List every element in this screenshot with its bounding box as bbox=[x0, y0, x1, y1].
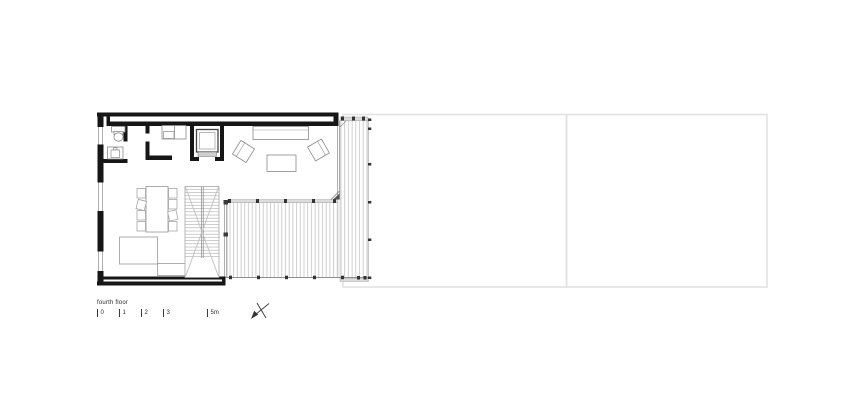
wall-top-inner bbox=[107, 122, 334, 127]
wall-left-seg3 bbox=[98, 211, 104, 252]
wall-bottom-end-cap bbox=[222, 277, 226, 286]
dining-chair bbox=[137, 211, 146, 221]
coffee-table bbox=[267, 155, 296, 172]
dining-area bbox=[136, 187, 178, 233]
dining-chair bbox=[168, 210, 178, 221]
dining-chair bbox=[169, 222, 178, 232]
wall-study-bottom bbox=[150, 156, 173, 161]
terrace-deck bbox=[226, 117, 372, 282]
wall-top-end-cap bbox=[334, 113, 339, 127]
sink-tap bbox=[114, 148, 118, 150]
living-room bbox=[232, 127, 329, 172]
cabinet-inner bbox=[164, 132, 175, 139]
floor-plan-drawing bbox=[0, 0, 853, 400]
dining-chair bbox=[169, 189, 178, 199]
sink-basin bbox=[111, 150, 120, 158]
wall-top-left-jog bbox=[107, 117, 111, 122]
neighbor-lot-2 bbox=[567, 115, 768, 288]
wall-bath-bottom bbox=[104, 159, 128, 163]
neighbor-lot-1 bbox=[343, 115, 567, 288]
wall-study-left bbox=[146, 142, 150, 161]
stair-treads bbox=[185, 187, 219, 259]
kitchen bbox=[120, 237, 189, 276]
bench bbox=[158, 264, 189, 276]
toilet-bowl bbox=[114, 133, 123, 141]
bathroom bbox=[108, 127, 126, 160]
scale-bar: 0 1 2 3 5m bbox=[0, 309, 300, 319]
dining-chair bbox=[137, 189, 146, 199]
wall-shaft-right bbox=[220, 126, 224, 161]
floor-label: fourth floor bbox=[97, 300, 128, 307]
dining-chair bbox=[136, 199, 147, 210]
scale-tick-1: 1 bbox=[119, 309, 126, 317]
dining-table bbox=[146, 187, 168, 233]
wall-shaft-left bbox=[190, 126, 194, 161]
dining-chair bbox=[169, 200, 178, 210]
dining-chair bbox=[137, 222, 146, 232]
wall-left-seg2 bbox=[98, 145, 104, 183]
deck-side-strip bbox=[340, 121, 368, 280]
elevator bbox=[197, 130, 219, 157]
scale-tick-5m: 5m bbox=[207, 309, 219, 317]
deck-main bbox=[228, 203, 339, 278]
wall-shaft-bottom-right bbox=[215, 157, 224, 161]
scale-tick-0: 0 bbox=[97, 309, 104, 317]
wall-shaft-bottom-left bbox=[190, 157, 199, 161]
scale-tick-3: 3 bbox=[163, 309, 170, 317]
floor-plan-sheet: { "title_block": { "floor_label": "fourt… bbox=[0, 0, 853, 400]
wall-top-outer bbox=[97, 113, 339, 117]
wall-study-stub bbox=[146, 126, 150, 134]
sliding-door-threshold bbox=[228, 200, 339, 203]
kitchen-counter bbox=[120, 237, 158, 264]
study-cabinet bbox=[162, 126, 186, 140]
scale-tick-2: 2 bbox=[141, 309, 148, 317]
wall-bottom-outer bbox=[97, 282, 226, 286]
staircase bbox=[185, 187, 219, 278]
wall-left-seg1 bbox=[98, 113, 104, 128]
elevator-door bbox=[198, 152, 217, 157]
armchair-right bbox=[308, 139, 330, 161]
site-outline bbox=[343, 115, 767, 288]
sofa bbox=[253, 127, 309, 140]
armchair-left bbox=[232, 140, 254, 162]
